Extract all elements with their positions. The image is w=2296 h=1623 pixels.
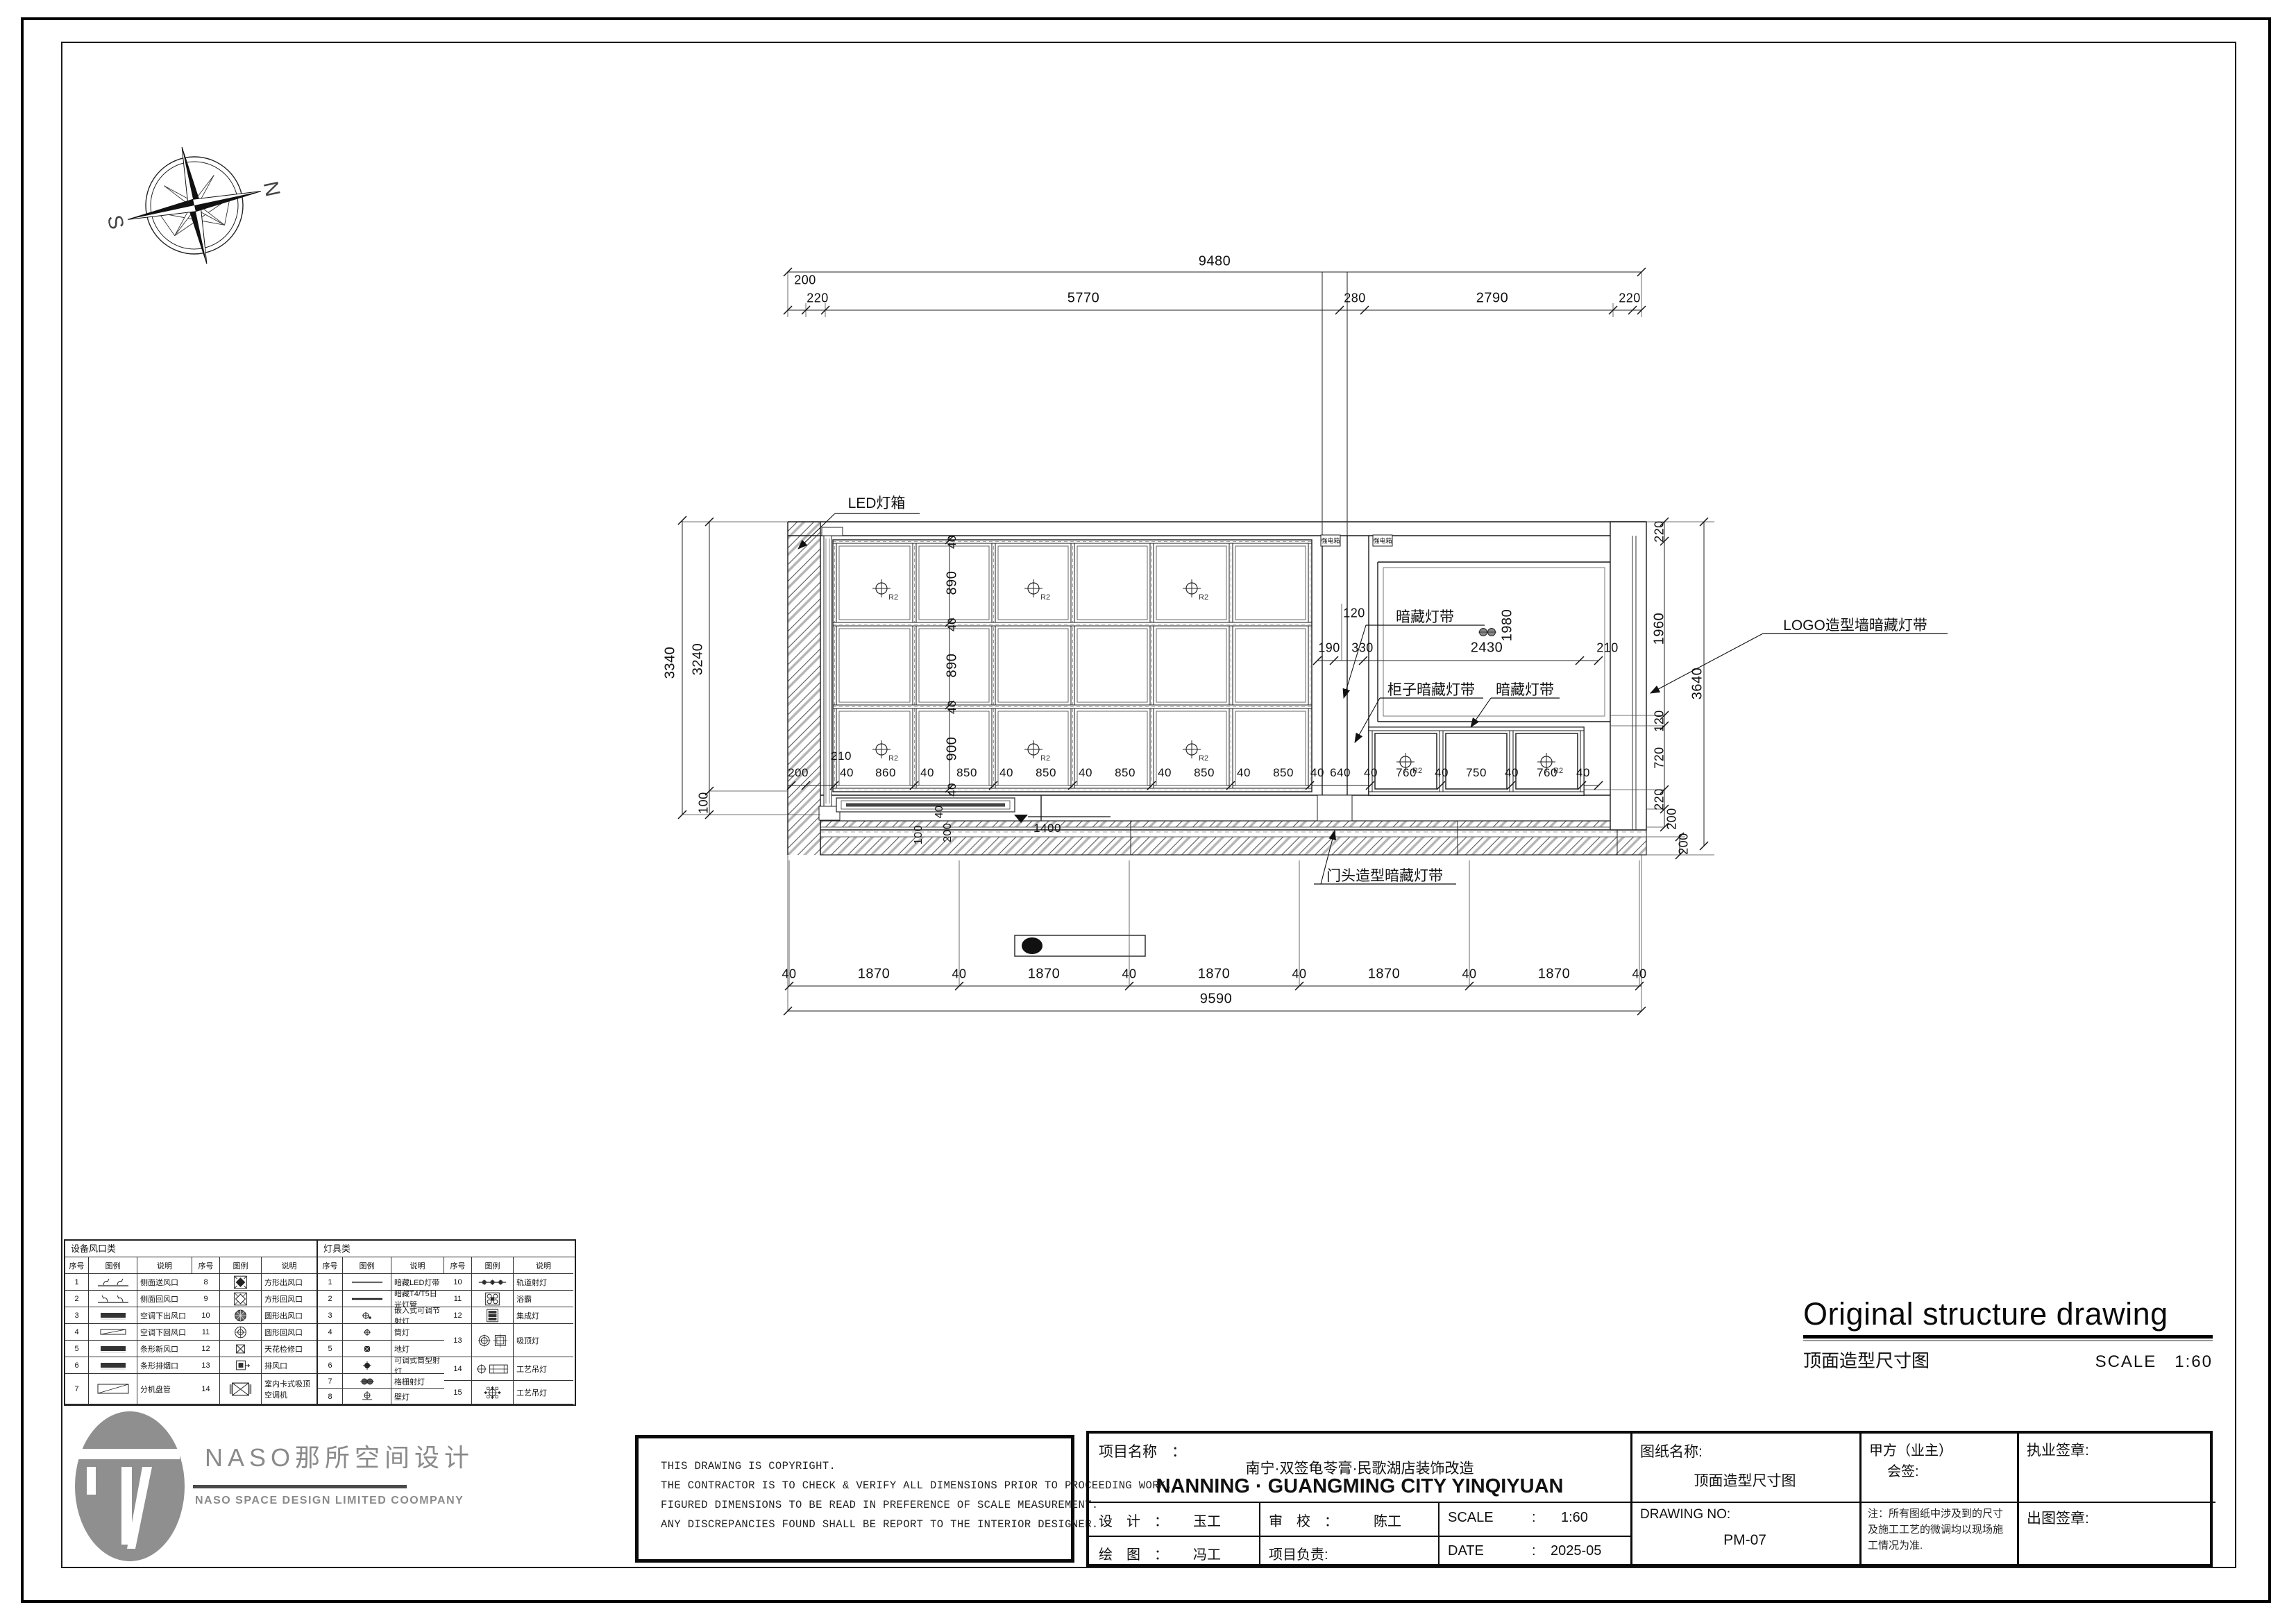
legend-symbol-cell: [220, 1341, 262, 1357]
legend-cell: 4: [318, 1324, 343, 1341]
legend-symbol-cell: [220, 1357, 262, 1374]
legend-cell: 集成灯: [514, 1307, 573, 1324]
downlight-icon: [346, 1325, 388, 1339]
legend-cell: 暗藏LED灯带: [391, 1274, 444, 1291]
round-return-icon: [220, 1325, 261, 1339]
legend-cell: 8: [192, 1274, 220, 1291]
date-label: DATE: [1448, 1543, 1484, 1559]
legend-header-cell: 序号: [192, 1257, 220, 1274]
legend-symbol-cell: [343, 1324, 391, 1341]
legend-cell: 9: [192, 1291, 220, 1307]
title-block-table: 项目名称 ： 南宁·双签龟苓膏·民歌湖店装饰改造 NANNING · GUANG…: [1086, 1431, 2213, 1567]
access-icon: [220, 1342, 261, 1356]
legend-cell: 10: [444, 1274, 472, 1291]
legend-cell: 5: [318, 1341, 343, 1357]
legend-cell: 3: [65, 1307, 89, 1324]
legend-symbol-cell: [472, 1291, 514, 1307]
legend-header-cell: 说明: [137, 1257, 192, 1274]
copyright-line: FIGURED DIMENSIONS TO BE READ IN PREFERE…: [661, 1495, 1071, 1515]
legend-header-cell: 图例: [472, 1257, 514, 1274]
view-scale: SCALE 1:60: [2095, 1352, 2213, 1372]
legend-header-cell: 图例: [89, 1257, 137, 1274]
legend-cell: 1: [65, 1274, 89, 1291]
legend-header-cell: 说明: [262, 1257, 316, 1274]
legend-cell: 工艺吊灯: [514, 1381, 573, 1404]
compass-north-label: N: [259, 179, 285, 198]
drafter-value: 冯工: [1193, 1543, 1221, 1563]
legend-cell: 格栅射灯: [391, 1374, 444, 1389]
legend-symbol-cell: [472, 1307, 514, 1324]
legend-cell: 7: [318, 1374, 343, 1389]
legend-cell: 13: [192, 1357, 220, 1374]
legend-symbol-cell: [343, 1357, 391, 1374]
legend-cell: 筒灯: [391, 1324, 444, 1341]
sq-return-icon: [220, 1292, 261, 1306]
fan-coil-icon: [92, 1382, 134, 1396]
legend-cell: 13: [444, 1324, 472, 1357]
legend-cell: 轨道射灯: [514, 1274, 573, 1291]
bar-dark-icon: [92, 1309, 134, 1323]
legend-symbol-cell: [220, 1274, 262, 1291]
round-supply-icon: [220, 1309, 261, 1323]
wall-lamp-icon: [346, 1390, 388, 1404]
door-head-band: [820, 821, 1646, 855]
legend-symbol-cell: [220, 1374, 262, 1404]
legend-header-cell: 图例: [343, 1257, 391, 1274]
legend-cell: 侧面回风口: [137, 1291, 192, 1307]
legend-cell: 4: [65, 1324, 89, 1341]
track-icon: [472, 1275, 513, 1289]
bar-dark-icon: [92, 1359, 134, 1373]
scale-label: SCALE: [1448, 1510, 1494, 1526]
legend-cell: 吸顶灯: [514, 1324, 573, 1357]
legend-cell: 5: [65, 1341, 89, 1357]
legend-symbol-cell: [343, 1274, 391, 1291]
date-value: 2025-05: [1551, 1543, 1601, 1559]
license-seal-label: 执业签章:: [2027, 1439, 2089, 1460]
legend-cell: 分机盘管: [137, 1374, 192, 1404]
copyright-line: ANY DISCREPANCIES FOUND SHALL BE REPORT …: [661, 1515, 1071, 1534]
legend-cell: 空调下回风口: [137, 1324, 192, 1341]
legend-cell: 浴霸: [514, 1291, 573, 1307]
legend-symbol-cell: [89, 1324, 137, 1341]
legend-cell: 11: [192, 1324, 220, 1341]
legend-table: 设备风口类序号图例说明序号图例说明1侧面送风口2侧面回风口3空调下出风口4空调下…: [64, 1239, 318, 1406]
legend-cell: 天花检修口: [262, 1341, 316, 1357]
site-note: 注：所有图纸中涉及到的尺寸及施工工艺的微调均以现场施工情况为准.: [1868, 1506, 2008, 1554]
drafter-label: 绘 图 ：: [1099, 1543, 1168, 1563]
naso-logo: [73, 1410, 191, 1564]
legend-cell: 室内卡式吸顶空调机: [262, 1374, 316, 1404]
legend-symbol-cell: [89, 1274, 137, 1291]
company-name-cn: NASO那所空间设计: [205, 1438, 474, 1474]
copyright-notice: THIS DRAWING IS COPYRIGHT.THE CONTRACTOR…: [635, 1435, 1074, 1563]
legend-cell: 嵌入式可调节射灯: [391, 1307, 444, 1324]
legend-cell: 6: [65, 1357, 89, 1374]
spot-adj-icon: [346, 1309, 388, 1323]
legend-cell: 方形回风口: [262, 1291, 316, 1307]
grille-spot-icon: [346, 1375, 388, 1388]
legend-symbol-cell: [472, 1324, 514, 1357]
legend-symbol-cell: [343, 1374, 391, 1389]
light-label: R2: [1412, 767, 1422, 775]
tb-divider-3: [2017, 1434, 2019, 1564]
bar-dark-icon: [92, 1342, 134, 1356]
light-label: R2: [888, 754, 898, 763]
designer-label: 设 计 ：: [1099, 1510, 1168, 1530]
adj-spot-icon: [346, 1359, 388, 1373]
legend-tables: 设备风口类序号图例说明序号图例说明1侧面送风口2侧面回风口3空调下出风口4空调下…: [64, 1239, 576, 1406]
compass-south-label: S: [103, 213, 128, 231]
drawing-sheet: N S: [0, 0, 2296, 1623]
legend-symbol-cell: [89, 1307, 137, 1324]
legend-table-title: 灯具类: [318, 1241, 575, 1257]
compass-rose: N S: [92, 128, 295, 283]
legend-cell: 3: [318, 1307, 343, 1324]
legend-cell: 2: [318, 1291, 343, 1307]
legend-symbol-cell: [343, 1389, 391, 1404]
bar-return-icon: [92, 1325, 134, 1339]
legend-table: 灯具类序号图例说明序号图例说明1暗藏LED灯带2暗藏T4/T5日光灯管3嵌入式可…: [318, 1239, 576, 1406]
issue-seal-label: 出图签章:: [2027, 1507, 2089, 1528]
legend-symbol-cell: [343, 1307, 391, 1324]
legend-cell: 11: [444, 1291, 472, 1307]
legend-symbol-cell: [220, 1307, 262, 1324]
legend-symbol-cell: [472, 1274, 514, 1291]
legend-header-cell: 说明: [514, 1257, 573, 1274]
legend-cell: 15: [444, 1381, 472, 1404]
light-label: R2: [1199, 593, 1208, 602]
legend-symbol-cell: [89, 1374, 137, 1404]
legend-symbol-cell: [89, 1341, 137, 1357]
legend-cell: 地灯: [391, 1341, 444, 1357]
integrated-icon: [472, 1309, 513, 1323]
title-underline: [1803, 1335, 2213, 1339]
legend-header-cell: 序号: [65, 1257, 89, 1274]
legend-header-cell: 图例: [220, 1257, 262, 1274]
light-label: R2: [1553, 767, 1563, 775]
view-title-cn: 顶面造型尺寸图: [1803, 1347, 1930, 1373]
legend-cell: 排风口: [262, 1357, 316, 1374]
reviewer-label: 审 校 ：: [1269, 1510, 1338, 1530]
legend-cell: 空调下出风口: [137, 1307, 192, 1324]
light-label: R2: [888, 593, 898, 602]
legend-cell: 12: [192, 1341, 220, 1357]
copyright-line: THIS DRAWING IS COPYRIGHT.: [661, 1456, 1071, 1476]
legend-cell: 壁灯: [391, 1389, 444, 1404]
light-label: R2: [1199, 754, 1208, 763]
legend-cell: 侧面送风口: [137, 1274, 192, 1291]
ceiling-lamp-icon: [472, 1334, 513, 1348]
party-a-label: 甲方（业主）: [1869, 1439, 1952, 1459]
reviewer-value: 陈工: [1374, 1510, 1401, 1530]
light-label: R2: [1040, 754, 1050, 763]
legend-table-title: 设备风口类: [65, 1241, 316, 1257]
legend-symbol-cell: [472, 1357, 514, 1381]
project-name-label: 项目名称 ：: [1099, 1441, 1186, 1461]
legend-symbol-cell: [472, 1381, 514, 1404]
drawing-no-value: PM-07: [1723, 1532, 1766, 1549]
light-label: R2: [1040, 593, 1050, 602]
floor-light-icon: [346, 1342, 388, 1356]
legend-cell: 2: [65, 1291, 89, 1307]
legend-cell: 圆形回风口: [262, 1324, 316, 1341]
legend-cell: 暗藏T4/T5日光灯管: [391, 1291, 444, 1307]
legend-cell: 7: [65, 1374, 89, 1404]
legend-header-cell: 说明: [391, 1257, 444, 1274]
grille-spotlight-symbol: [1478, 629, 1496, 636]
legend-cell: 1: [318, 1274, 343, 1291]
legend-cell: 工艺吊灯: [514, 1357, 573, 1381]
legend-cell: 条形排烟口: [137, 1357, 192, 1374]
legend-cell: 6: [318, 1357, 343, 1374]
copyright-line: THE CONTRACTOR IS TO CHECK & VERIFY ALL …: [661, 1476, 1071, 1495]
company-name-en: NASO SPACE DESIGN LIMITED COOMPANY: [195, 1495, 464, 1507]
vent-side-return-icon: [92, 1292, 134, 1306]
vent-side-supply-icon: [92, 1275, 134, 1289]
legend-cell: 方形出风口: [262, 1274, 316, 1291]
legend-symbol-cell: [343, 1341, 391, 1357]
pendant1-icon: [472, 1362, 513, 1376]
legend-symbol-cell: [220, 1324, 262, 1341]
sheet-name-label: 图纸名称:: [1640, 1441, 1703, 1461]
left-wall-hatch: [788, 522, 820, 855]
designer-value: 玉工: [1193, 1510, 1221, 1530]
pendant2-icon: [472, 1386, 513, 1400]
legend-cell: 14: [444, 1357, 472, 1381]
logo-rule: [193, 1485, 407, 1488]
sheet-name-value: 顶面造型尺寸图: [1694, 1470, 1796, 1490]
legend-cell: 10: [192, 1307, 220, 1324]
legend-symbol-cell: [343, 1291, 391, 1307]
legend-cell: 12: [444, 1307, 472, 1324]
sq-supply-icon: [220, 1275, 261, 1289]
tb-divider-1: [1630, 1434, 1632, 1564]
tb-divider-2: [1859, 1434, 1862, 1564]
countersign-label: 会签:: [1887, 1460, 1919, 1480]
legend-symbol-cell: [89, 1357, 137, 1374]
legend-symbol-cell: [89, 1291, 137, 1307]
led-strip-icon: [346, 1275, 388, 1289]
t5-tube-icon: [346, 1292, 388, 1306]
legend-cell: 圆形出风口: [262, 1307, 316, 1324]
project-name-en: NANNING · GUANGMING CITY YINQIYUAN: [1156, 1475, 1563, 1498]
legend-header-cell: 序号: [444, 1257, 472, 1274]
legend-cell: 8: [318, 1389, 343, 1404]
view-title-area: Original structure drawing 顶面造型尺寸图 SCALE…: [1803, 1296, 2213, 1373]
view-title: Original structure drawing: [1803, 1296, 2213, 1332]
project-lead-label: 项目负责:: [1269, 1543, 1328, 1563]
title-underline-2: [1803, 1340, 2213, 1341]
cassette-icon: [220, 1382, 261, 1396]
exhaust-icon: [220, 1359, 261, 1373]
legend-cell: 可调式筒型射灯: [391, 1357, 444, 1374]
scale-value: 1:60: [1561, 1510, 1588, 1526]
bath-heater-icon: [472, 1292, 513, 1306]
legend-symbol-cell: [220, 1291, 262, 1307]
drawing-no-label: DRAWING NO:: [1640, 1507, 1730, 1522]
legend-cell: 14: [192, 1374, 220, 1404]
legend-cell: 条形新风口: [137, 1341, 192, 1357]
legend-header-cell: 序号: [318, 1257, 343, 1274]
